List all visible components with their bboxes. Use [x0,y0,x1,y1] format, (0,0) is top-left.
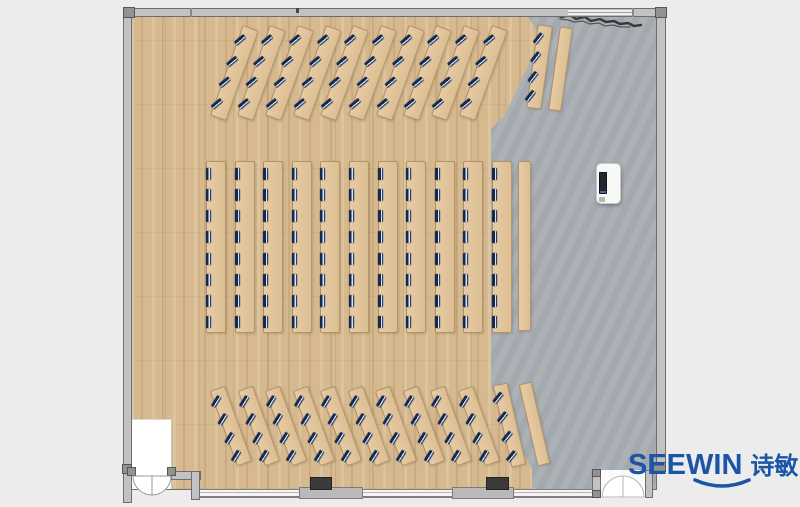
workstation-mark [235,253,240,265]
workstation-mark [463,168,468,180]
side-table [548,27,573,112]
workstation-mark [263,168,268,180]
desk-strip [526,24,553,109]
workstation-mark [458,395,469,408]
workstation-mark [263,274,268,286]
workstation-mark [410,413,421,426]
workstation-mark [378,274,383,286]
workstation-mark [233,34,245,46]
workstation-mark [238,395,249,408]
workstation-mark [320,231,325,243]
workstation-mark [320,253,325,265]
workstation-mark [320,189,325,201]
workstation-mark [492,189,497,201]
desk-strip [206,161,226,333]
workstation-mark [463,189,468,201]
workstation-mark [266,98,278,110]
column-block [310,477,332,490]
desk-strip [492,161,512,333]
workstation-mark [320,274,325,286]
workstation-mark [435,189,440,201]
window-top [568,9,632,16]
workstation-mark [349,231,354,243]
desk-strip [235,161,255,333]
workstation-mark [235,295,240,307]
door-post [592,469,601,477]
workstation-mark [459,98,471,110]
workstation-mark [292,316,297,328]
workstation-mark [492,231,497,243]
workstation-mark [440,77,452,89]
workstation-mark [463,316,468,328]
workstation-mark [496,411,507,423]
workstation-mark [501,431,512,443]
workstation-mark [406,231,411,243]
workstation-mark [246,77,258,89]
workstation-mark [492,210,497,222]
workstation-mark [372,34,384,46]
workstation-mark [392,55,404,67]
desk-strip [435,161,455,333]
workstation-mark [336,55,348,67]
workstation-mark [206,274,211,286]
workstation-mark [412,77,424,89]
workstation-mark [406,253,411,265]
workstation-mark [253,55,265,67]
workstation-mark [492,316,497,328]
workstation-mark [349,295,354,307]
workstation-mark [492,274,497,286]
workstation-mark [505,450,516,462]
brand-logo-swoosh-icon [692,477,752,491]
workstation-mark [524,90,535,103]
brand-logo: SEEWIN诗敏 [628,446,800,498]
workstation-mark [266,395,277,408]
workstation-mark [378,295,383,307]
workstation-mark [492,168,497,180]
workstation-mark [235,316,240,328]
window-wall-bottom [196,489,592,498]
desk-strip [292,161,312,333]
column-block [486,477,509,490]
workstation-mark [406,168,411,180]
workstation-mark [317,34,329,46]
workstation-mark [406,210,411,222]
workstation-mark [206,253,211,265]
workstation-mark [389,431,400,444]
workstation-mark [301,77,313,89]
workstation-mark [293,395,304,408]
workstation-mark [463,231,468,243]
workstation-mark [218,77,230,89]
workstation-mark [349,189,354,201]
workstation-mark [463,295,468,307]
workstation-mark [349,274,354,286]
workstation-mark [235,210,240,222]
workstation-mark [263,210,268,222]
workstation-mark [206,231,211,243]
door-post [592,490,601,498]
workstation-mark [261,34,273,46]
workstation-mark [292,253,297,265]
workstation-mark [527,71,538,84]
workstation-mark [463,274,468,286]
workstation-mark [292,210,297,222]
workstation-mark [435,274,440,286]
workstation-mark [492,392,503,404]
workstation-mark [206,316,211,328]
workstation-mark [465,413,476,426]
workstation-mark [455,34,467,46]
workstation-mark [435,168,440,180]
workstation-mark [435,253,440,265]
workstation-mark [378,316,383,328]
workstation-mark [321,98,333,110]
workstation-mark [378,168,383,180]
workstation-mark [348,395,359,408]
workstation-mark [417,431,428,444]
workstation-mark [406,316,411,328]
wall-left [123,8,132,503]
workstation-mark [532,32,543,45]
door-post [127,467,136,476]
workstation-mark [263,295,268,307]
workstation-mark [378,231,383,243]
workstation-mark [404,98,416,110]
workstation-mark [406,295,411,307]
workstation-mark [478,450,489,463]
workstation-mark [530,51,541,64]
workstation-mark [263,189,268,201]
workstation-mark [378,253,383,265]
workstation-mark [245,413,256,426]
workstation-mark [235,231,240,243]
workstation-mark [483,34,495,46]
workstation-mark [320,316,325,328]
wall-joint [632,8,634,17]
workstation-mark [376,98,388,110]
workstation-mark [435,295,440,307]
workstation-mark [286,450,297,463]
workstation-mark [435,231,440,243]
workstation-mark [356,77,368,89]
floor-plan-canvas: SEEWIN诗敏 [0,0,800,507]
wall-tick [296,8,299,13]
desk-strip [463,161,483,333]
workstation-mark [463,253,468,265]
workstation-mark [320,168,325,180]
workstation-mark [328,413,339,426]
workstation-mark [292,231,297,243]
workstation-mark [400,34,412,46]
desk-strip [406,161,426,333]
workstation-mark [258,450,269,463]
workstation-mark [349,168,354,180]
workstation-mark [463,210,468,222]
workstation-mark [292,295,297,307]
workstation-mark [289,34,301,46]
workstation-mark [292,189,297,201]
workstation-mark [292,168,297,180]
workstation-mark [349,98,361,110]
workstation-mark [293,98,305,110]
workstation-mark [467,77,479,89]
workstation-mark [273,77,285,89]
wall-joint [190,8,192,17]
desk-layer [0,0,800,507]
door-post [167,467,176,476]
workstation-mark [329,77,341,89]
workstation-mark [423,450,434,463]
workstation-mark [263,231,268,243]
workstation-mark [406,274,411,286]
workstation-mark [368,450,379,463]
workstation-mark [475,55,487,67]
workstation-mark [279,431,290,444]
workstation-mark [447,55,459,67]
workstation-mark [206,210,211,222]
workstation-mark [238,98,250,110]
workstation-mark [309,55,321,67]
workstation-mark [362,431,373,444]
workstation-mark [320,210,325,222]
workstation-mark [349,253,354,265]
workstation-mark [364,55,376,67]
workstation-mark [344,34,356,46]
workstation-mark [235,168,240,180]
workstation-mark [355,413,366,426]
side-table [518,161,531,331]
workstation-mark [313,450,324,463]
workstation-mark [292,274,297,286]
workstation-mark [435,210,440,222]
workstation-mark [451,450,462,463]
workstation-mark [403,395,414,408]
workstation-mark [472,431,483,444]
workstation-mark [206,168,211,180]
workstation-mark [384,77,396,89]
workstation-mark [206,295,211,307]
workstation-mark [492,253,497,265]
workstation-mark [435,316,440,328]
workstation-mark [218,413,229,426]
corner-post-top-left [123,7,135,18]
workstation-mark [307,431,318,444]
workstation-mark [396,450,407,463]
workstation-mark [263,316,268,328]
workstation-mark [334,431,345,444]
workstation-mark [273,413,284,426]
workstation-mark [406,189,411,201]
workstation-mark [300,413,311,426]
workstation-mark [231,450,242,463]
workstation-mark [378,210,383,222]
wall-stub-vertical [191,471,200,500]
corner-post-top-right [655,7,667,18]
workstation-mark [206,189,211,201]
workstation-mark [349,316,354,328]
workstation-mark [444,431,455,444]
workstation-mark [211,395,222,408]
brand-logo-chinese: 诗敏 [750,453,798,480]
workstation-mark [349,210,354,222]
lectern-screen [599,172,607,194]
desk-strip [349,161,369,333]
desk-strip [320,161,340,333]
workstation-mark [492,295,497,307]
workstation-mark [438,413,449,426]
workstation-mark [431,395,442,408]
workstation-mark [376,395,387,408]
desk-strip [263,161,283,333]
workstation-mark [321,395,332,408]
wall-right [656,8,666,472]
workstation-mark [235,189,240,201]
workstation-mark [341,450,352,463]
desk-strip [378,161,398,333]
workstation-mark [210,98,222,110]
workstation-mark [378,189,383,201]
workstation-mark [235,274,240,286]
lectern-base [599,197,605,202]
workstation-mark [320,295,325,307]
workstation-mark [252,431,263,444]
lectern [596,163,621,204]
workstation-mark [420,55,432,67]
workstation-mark [226,55,238,67]
workstation-mark [383,413,394,426]
entrance-vestibule [132,419,172,489]
workstation-mark [263,253,268,265]
workstation-mark [427,34,439,46]
workstation-mark [432,98,444,110]
workstation-mark [281,55,293,67]
workstation-mark [224,431,235,444]
